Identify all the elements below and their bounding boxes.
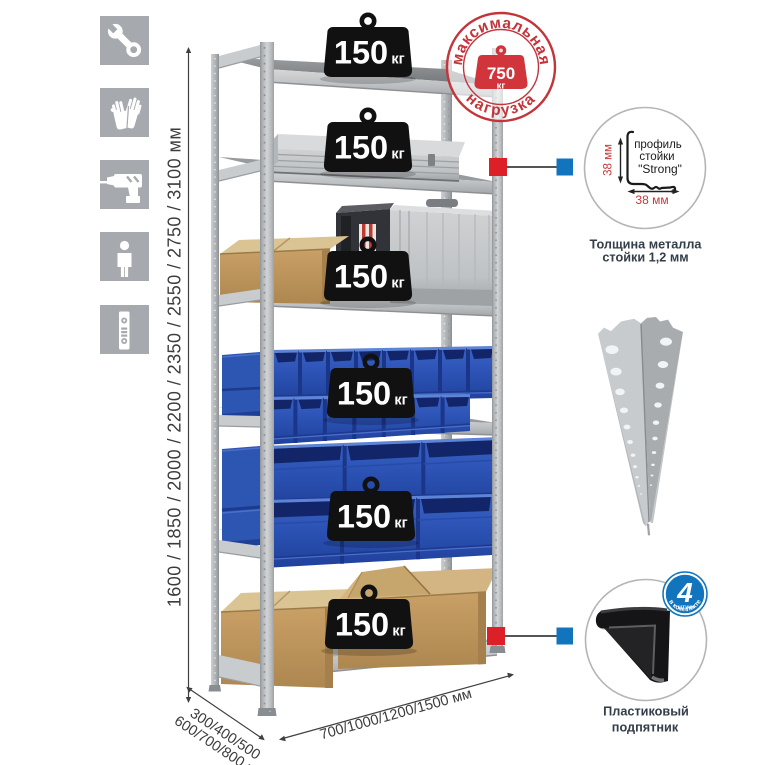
svg-text:4: 4	[676, 577, 693, 608]
svg-text:38 мм: 38 мм	[603, 144, 615, 176]
svg-text:"Strong": "Strong"	[638, 162, 682, 176]
svg-text:профиль: профиль	[634, 139, 682, 151]
svg-text:подпятник: подпятник	[612, 721, 679, 735]
svg-text:1600 / 1850 / 2000 / 2200 / 23: 1600 / 1850 / 2000 / 2200 / 2350 / 2550 …	[165, 127, 185, 607]
svg-text:38 мм: 38 мм	[635, 193, 668, 207]
svg-text:Толщина металла: Толщина металла	[590, 238, 703, 252]
svg-text:стойки 1,2 мм: стойки 1,2 мм	[602, 251, 688, 265]
svg-text:кг: кг	[497, 81, 506, 92]
svg-text:Пластиковый: Пластиковый	[603, 705, 689, 719]
